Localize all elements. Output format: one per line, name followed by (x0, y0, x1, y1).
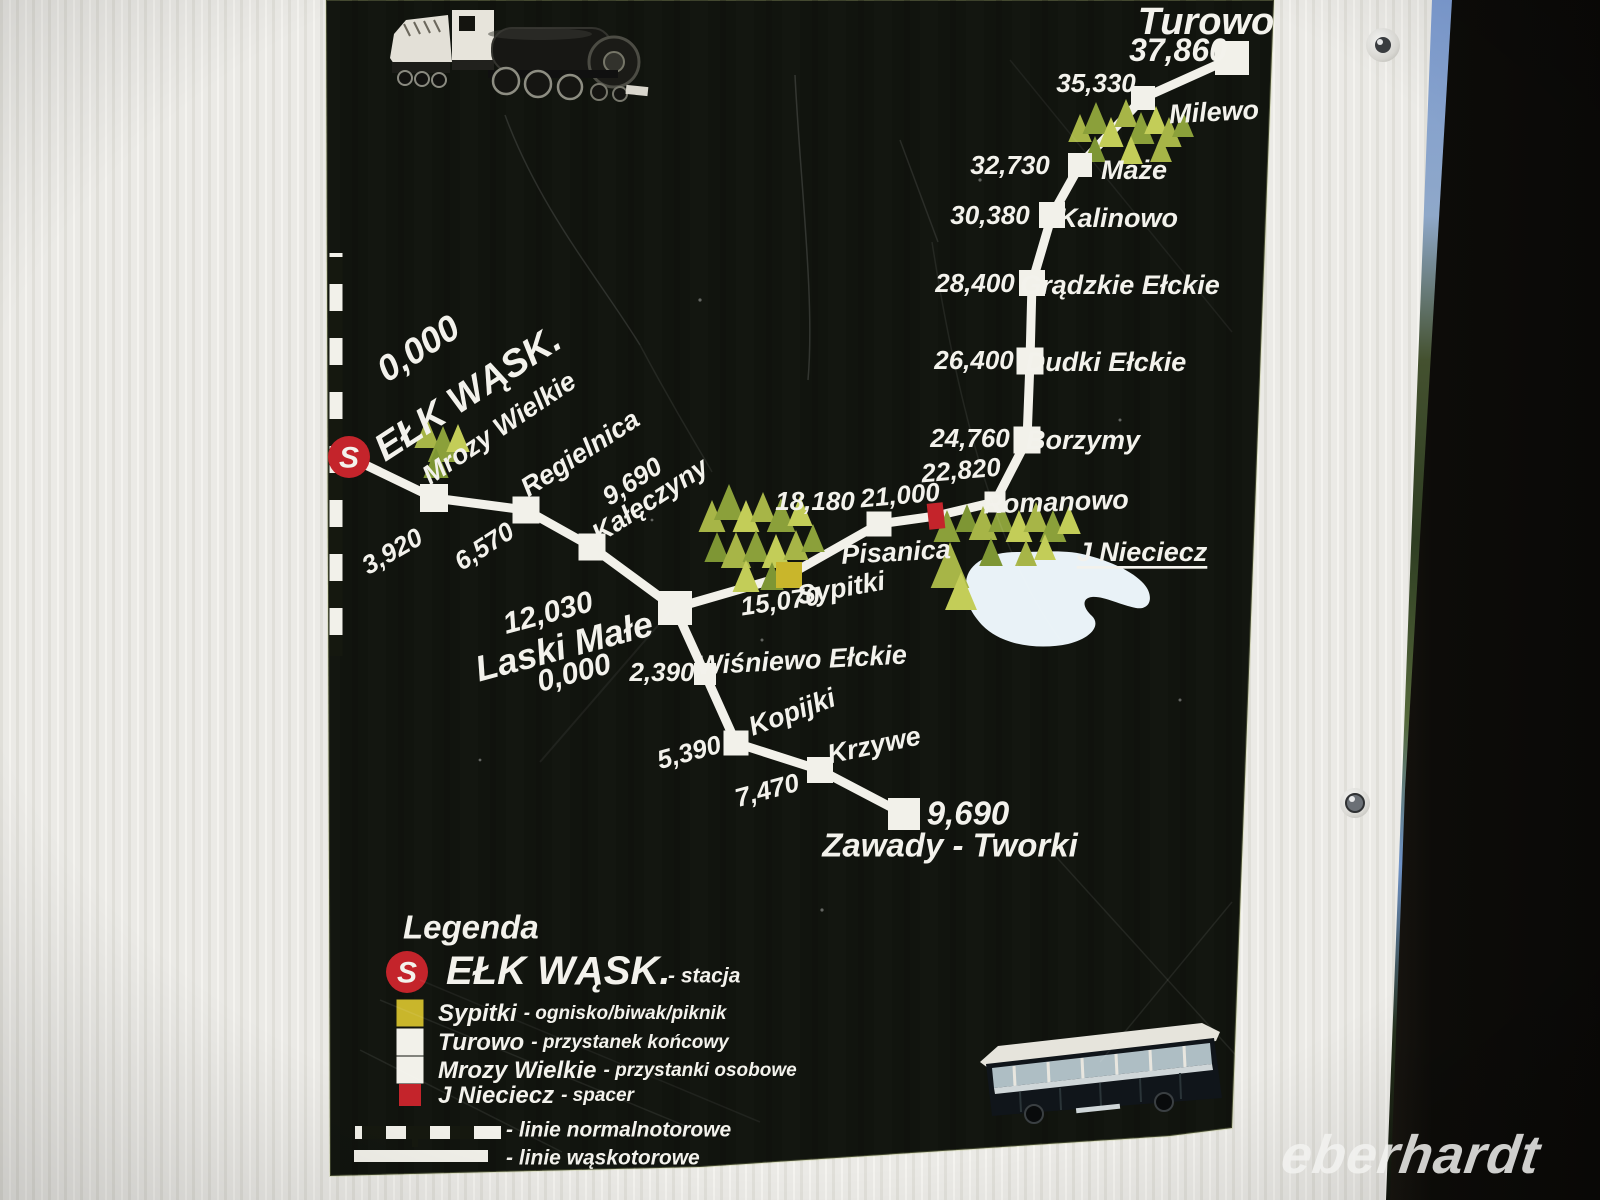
watermark: eberhardt (1278, 1124, 1545, 1186)
railway-map-sign-svg: J NiecieczS0,000EŁK WĄSK.3,920Mrozy Wiel… (0, 0, 1600, 1200)
photo-vignette (0, 0, 1600, 1200)
photo-of-railway-map-sign: J NiecieczS0,000EŁK WĄSK.3,920Mrozy Wiel… (0, 0, 1600, 1200)
